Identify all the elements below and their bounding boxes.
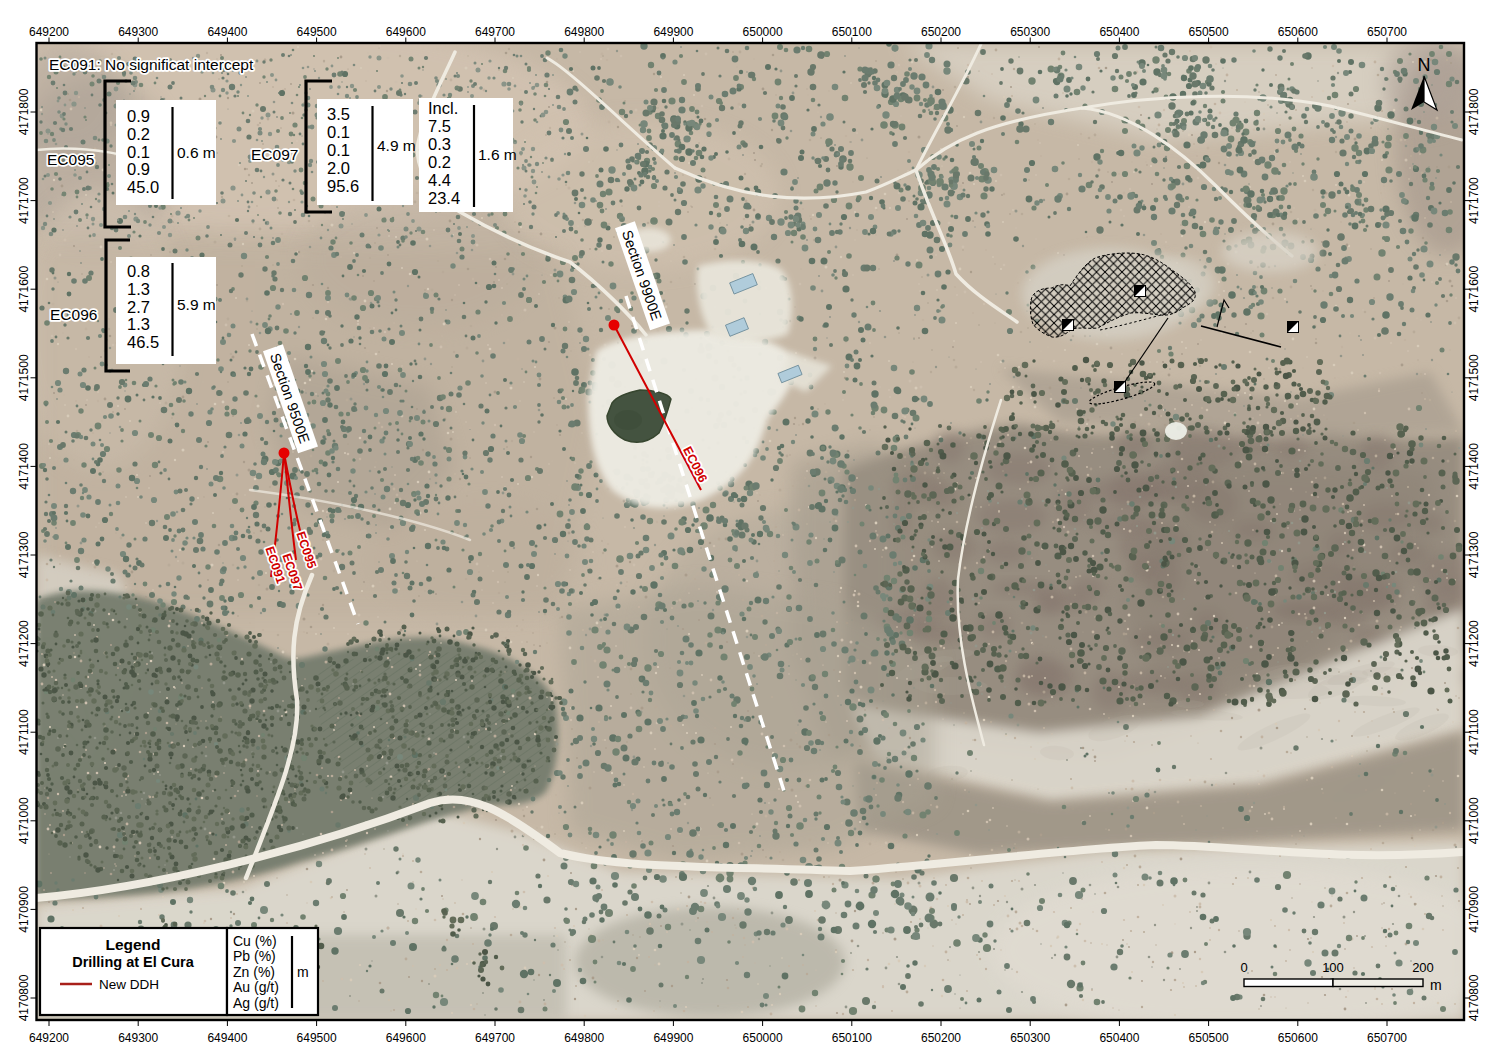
svg-text:650100: 650100 (832, 1031, 872, 1045)
svg-text:4.9 m: 4.9 m (377, 137, 416, 154)
svg-text:N: N (1418, 55, 1431, 75)
svg-text:Ag (g/t): Ag (g/t) (233, 995, 279, 1011)
svg-text:649200: 649200 (29, 1031, 69, 1045)
svg-text:2.7: 2.7 (127, 298, 150, 316)
svg-text:5.9 m: 5.9 m (177, 296, 216, 313)
svg-text:4170900: 4170900 (17, 886, 31, 933)
svg-text:m: m (1430, 977, 1442, 993)
svg-text:0.1: 0.1 (127, 143, 150, 161)
svg-text:1.6 m: 1.6 m (478, 146, 517, 163)
svg-text:3.5: 3.5 (327, 105, 350, 123)
svg-text:649900: 649900 (653, 1031, 693, 1045)
svg-text:649800: 649800 (564, 1031, 604, 1045)
svg-text:0.3: 0.3 (428, 135, 451, 153)
svg-text:650700: 650700 (1367, 25, 1407, 39)
svg-text:0.1: 0.1 (327, 123, 350, 141)
svg-text:4170800: 4170800 (17, 974, 31, 1021)
svg-text:649900: 649900 (653, 25, 693, 39)
svg-text:649800: 649800 (564, 25, 604, 39)
svg-text:650600: 650600 (1278, 25, 1318, 39)
svg-text:95.6: 95.6 (327, 177, 359, 195)
svg-text:0.6 m: 0.6 m (177, 144, 216, 161)
svg-text:650500: 650500 (1189, 25, 1229, 39)
svg-text:4171500: 4171500 (17, 354, 31, 401)
svg-text:4171300: 4171300 (17, 531, 31, 578)
svg-text:650700: 650700 (1367, 1031, 1407, 1045)
svg-text:0.2: 0.2 (428, 153, 451, 171)
svg-text:0.1: 0.1 (327, 141, 350, 159)
svg-text:650200: 650200 (921, 25, 961, 39)
svg-text:649500: 649500 (297, 25, 337, 39)
svg-text:0.2: 0.2 (127, 125, 150, 143)
svg-text:45.0: 45.0 (127, 178, 159, 196)
svg-text:100: 100 (1322, 960, 1344, 975)
svg-text:0.9: 0.9 (127, 160, 150, 178)
svg-text:4171100: 4171100 (17, 709, 31, 755)
svg-text:650600: 650600 (1278, 1031, 1318, 1045)
svg-text:7.5: 7.5 (428, 117, 451, 135)
svg-text:4171800: 4171800 (17, 88, 31, 135)
svg-text:Cu (%): Cu (%) (233, 933, 277, 949)
svg-text:Drilling at El Cura: Drilling at El Cura (72, 954, 195, 970)
svg-text:4171600: 4171600 (17, 266, 31, 313)
svg-text:EC096: EC096 (50, 306, 97, 323)
svg-text:1.3: 1.3 (127, 280, 150, 298)
svg-text:Pb (%): Pb (%) (233, 948, 276, 964)
svg-text:Zn (%): Zn (%) (233, 964, 275, 980)
svg-text:649300: 649300 (118, 1031, 158, 1045)
svg-text:m: m (297, 964, 309, 980)
svg-text:650200: 650200 (921, 1031, 961, 1045)
svg-text:4.4: 4.4 (428, 171, 451, 189)
svg-text:650300: 650300 (1010, 1031, 1050, 1045)
svg-text:650000: 650000 (743, 25, 783, 39)
svg-text:650400: 650400 (1099, 25, 1139, 39)
svg-text:649400: 649400 (207, 1031, 247, 1045)
svg-text:650500: 650500 (1189, 1031, 1229, 1045)
svg-text:Au (g/t): Au (g/t) (233, 979, 279, 995)
svg-text:46.5: 46.5 (127, 333, 159, 351)
svg-text:649700: 649700 (475, 1031, 515, 1045)
svg-text:649300: 649300 (118, 25, 158, 39)
svg-text:1.3: 1.3 (127, 315, 150, 333)
svg-text:200: 200 (1412, 960, 1434, 975)
svg-text:650100: 650100 (832, 25, 872, 39)
svg-text:650000: 650000 (743, 1031, 783, 1045)
svg-text:4171400: 4171400 (17, 443, 31, 490)
svg-text:4171000: 4171000 (17, 797, 31, 844)
svg-text:0.8: 0.8 (127, 262, 150, 280)
svg-text:EC097: EC097 (251, 146, 298, 163)
svg-text:23.4: 23.4 (428, 189, 460, 207)
svg-text:649600: 649600 (386, 25, 426, 39)
svg-text:2.0: 2.0 (327, 159, 350, 177)
svg-text:650300: 650300 (1010, 25, 1050, 39)
svg-text:649400: 649400 (207, 25, 247, 39)
svg-text:649600: 649600 (386, 1031, 426, 1045)
svg-text:649500: 649500 (297, 1031, 337, 1045)
svg-text:New DDH: New DDH (99, 977, 159, 992)
svg-text:649200: 649200 (29, 25, 69, 39)
svg-text:Incl.: Incl. (428, 99, 458, 117)
svg-text:650400: 650400 (1099, 1031, 1139, 1045)
svg-text:Legend: Legend (105, 936, 160, 953)
svg-text:EC091: No significat intercept: EC091: No significat intercept (49, 56, 254, 73)
svg-text:649700: 649700 (475, 25, 515, 39)
svg-text:0.9: 0.9 (127, 107, 150, 125)
svg-text:0: 0 (1240, 960, 1247, 975)
svg-text:4171200: 4171200 (17, 620, 31, 667)
svg-text:4171700: 4171700 (17, 177, 31, 224)
svg-text:EC095: EC095 (47, 151, 94, 168)
